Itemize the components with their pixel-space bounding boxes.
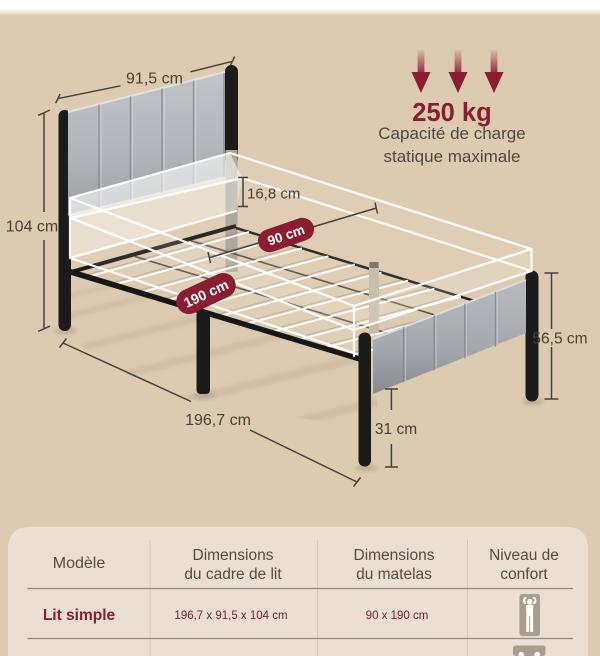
- svg-text:Lit simple: Lit simple: [43, 607, 116, 624]
- svg-text:Modèle: Modèle: [53, 555, 106, 572]
- svg-text:250 kg: 250 kg: [412, 99, 491, 127]
- svg-text:16,8 cm: 16,8 cm: [247, 186, 300, 203]
- svg-text:91,5 cm: 91,5 cm: [126, 71, 183, 88]
- svg-text:statique maximale: statique maximale: [383, 147, 520, 166]
- svg-text:56,5 cm: 56,5 cm: [532, 331, 587, 348]
- svg-text:196,7 cm: 196,7 cm: [185, 412, 251, 429]
- svg-text:104 cm: 104 cm: [6, 219, 58, 236]
- svg-text:du cadre de lit: du cadre de lit: [184, 566, 282, 583]
- svg-text:Capacité de charge: Capacité de charge: [378, 124, 525, 143]
- svg-text:Niveau de: Niveau de: [489, 547, 559, 564]
- svg-text:31 cm: 31 cm: [375, 421, 417, 438]
- svg-text:Dimensions: Dimensions: [354, 547, 435, 564]
- svg-text:du matelas: du matelas: [356, 566, 432, 583]
- svg-text:Dimensions: Dimensions: [193, 547, 274, 564]
- svg-text:196,7 x 91,5 x 104 cm: 196,7 x 91,5 x 104 cm: [174, 610, 287, 622]
- svg-text:90 x 190 cm: 90 x 190 cm: [366, 610, 429, 622]
- svg-text:confort: confort: [500, 566, 548, 583]
